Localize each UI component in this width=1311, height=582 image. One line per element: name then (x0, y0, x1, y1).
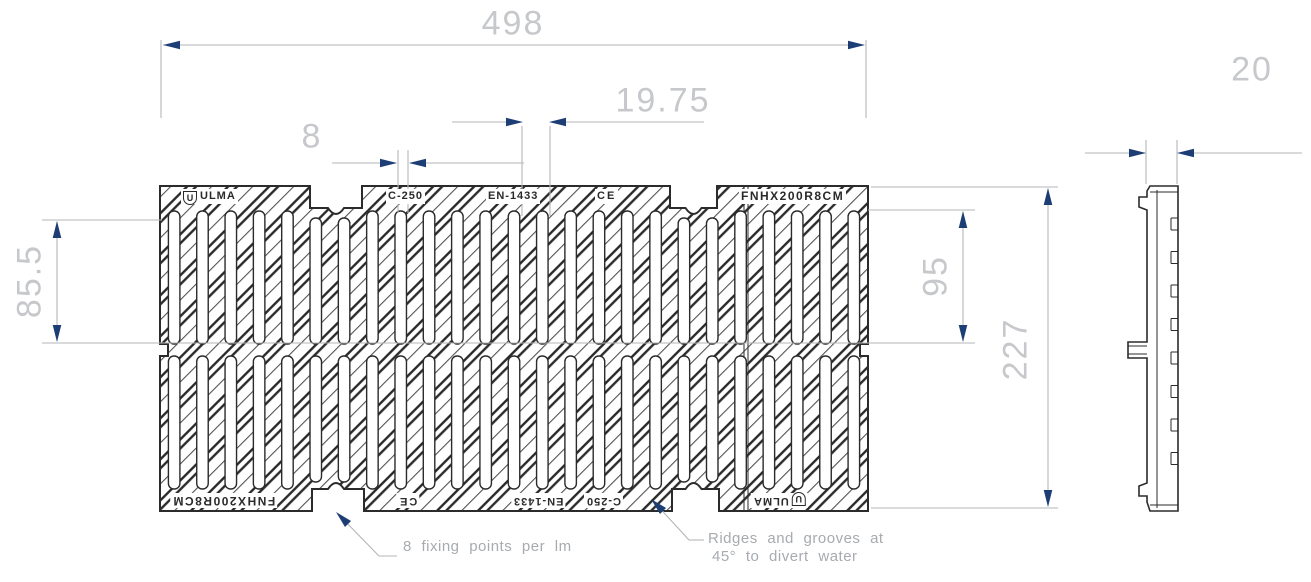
grate-slot (253, 211, 265, 344)
grate-slot (763, 211, 775, 344)
dimension-overall-length: 498 (482, 5, 545, 44)
grate-slot (282, 211, 294, 344)
grate-slot (452, 211, 464, 344)
arrowhead-icon (1177, 149, 1194, 158)
annotation-ridges-line2: 45° to divert water (712, 548, 858, 565)
grate-slot (452, 356, 464, 489)
side-view (1128, 186, 1178, 511)
grate-slot (310, 218, 322, 344)
arrowhead-icon (1044, 188, 1053, 205)
ulma-shield-icon: U (183, 191, 197, 205)
technical-drawing-page: 498 19.75 8 85.5 95 227 20 UULMA C-250 E… (0, 0, 1311, 582)
grate-slot (706, 218, 718, 344)
grate-slot (480, 211, 492, 344)
grate-slot (650, 356, 662, 489)
grate-slot (338, 218, 350, 344)
grate-slot (197, 211, 209, 344)
grate-slot (367, 211, 379, 344)
brand-text: ULMA (200, 190, 236, 202)
load-class-label-top: C-250 (386, 189, 425, 204)
arrowhead-icon (959, 211, 968, 228)
grate-slot (168, 356, 180, 489)
grate-slot (423, 211, 435, 344)
grate-slot (537, 356, 549, 489)
grate-slot (225, 356, 237, 489)
model-label-top: FNHX200R8CM (739, 189, 846, 204)
arrowhead-icon (53, 325, 62, 342)
grate-slot (820, 211, 832, 344)
grate-slot (225, 211, 237, 344)
grate-slot (820, 356, 832, 489)
ce-mark-bottom: CE (396, 493, 419, 508)
brand-text: ULMA (753, 495, 789, 507)
grate-slot (367, 356, 379, 489)
grate-slot (480, 356, 492, 489)
grate-slot (706, 356, 718, 482)
arrowhead-icon (549, 118, 566, 127)
load-class-label-bottom: C-250 (584, 493, 623, 508)
dimension-slot-length: 85.5 (11, 244, 50, 318)
grate-slot (791, 356, 803, 489)
grate-slot (395, 356, 407, 489)
grate-slot (395, 211, 407, 344)
grate-slot (423, 356, 435, 489)
grate-slot (508, 211, 520, 344)
grate-slot (763, 356, 775, 489)
grate-slot (197, 356, 209, 489)
arrowhead-icon (959, 325, 968, 342)
arrowhead-icon (380, 159, 397, 168)
grate-slot (282, 356, 294, 489)
arrowhead-icon (506, 118, 523, 127)
grate-slot (310, 356, 322, 482)
grate-slot (622, 211, 634, 344)
grate-slot (593, 356, 605, 489)
grate-slot (678, 218, 690, 344)
grate-slot (791, 211, 803, 344)
arrowhead-icon (848, 41, 865, 50)
grate-slot (593, 211, 605, 344)
grate-slot (622, 356, 634, 489)
grate-slot (735, 211, 747, 344)
arrowhead-icon (163, 41, 180, 50)
dimension-slot-width: 8 (302, 118, 323, 157)
brand-label-top: UULMA (181, 189, 238, 204)
dimension-overall-width: 227 (997, 318, 1036, 381)
standard-label-bottom: EN-1433 (511, 493, 565, 508)
grate-slot (253, 356, 265, 489)
ulma-shield-icon: U (792, 492, 806, 506)
ce-mark-top: CE (595, 189, 618, 204)
standard-label-top: EN-1433 (486, 189, 540, 204)
arrowhead-icon (409, 159, 426, 168)
annotation-fixing-points: 8 fixing points per lm (403, 538, 572, 555)
dimension-slot-pitch: 19.75 (615, 82, 710, 121)
brand-label-bottom: UULMA (751, 493, 808, 508)
grate-slot (848, 356, 860, 489)
arrowhead-icon (53, 221, 62, 238)
annotation-ridges-line1: Ridges and grooves at (708, 530, 884, 547)
grate-slot (678, 356, 690, 482)
grate-slot (565, 211, 577, 344)
model-label-bottom: FNHX200R8CM (170, 493, 277, 508)
plan-view (160, 186, 868, 511)
grate-slot (537, 211, 549, 344)
grate-slot (168, 211, 180, 344)
arrowhead-icon (1129, 149, 1146, 158)
dimension-thickness: 20 (1231, 51, 1273, 90)
grate-slot (338, 356, 350, 482)
grate-slot (565, 356, 577, 489)
arrowhead-icon (1044, 490, 1053, 507)
dimension-inner-span: 95 (917, 255, 956, 297)
grate-slot (735, 356, 747, 489)
grate-slot (650, 211, 662, 344)
grate-slot (508, 356, 520, 489)
grate-slot (848, 211, 860, 344)
